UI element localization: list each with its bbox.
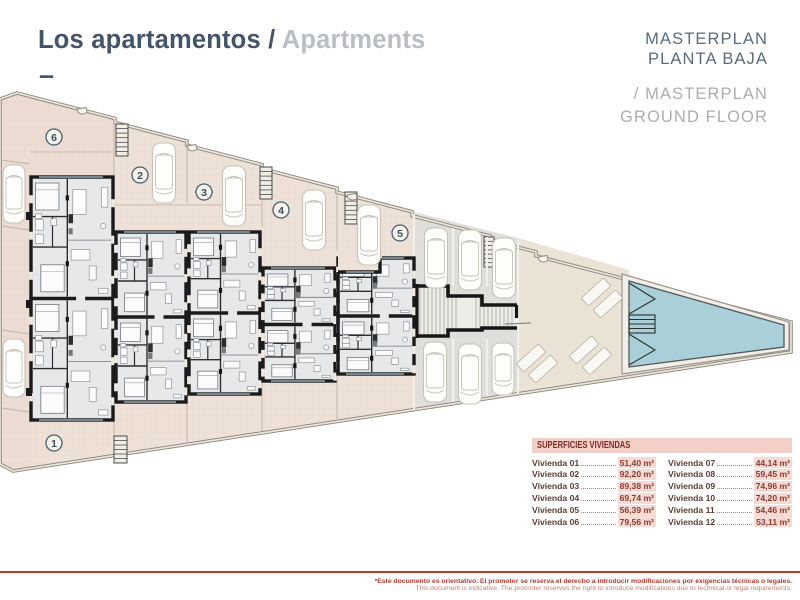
svg-text:4: 4 (278, 205, 284, 217)
svg-text:2: 2 (137, 170, 143, 182)
svg-text:1: 1 (51, 438, 57, 450)
svg-text:5: 5 (397, 228, 403, 240)
svg-text:3: 3 (201, 187, 207, 199)
svg-text:6: 6 (51, 132, 57, 144)
